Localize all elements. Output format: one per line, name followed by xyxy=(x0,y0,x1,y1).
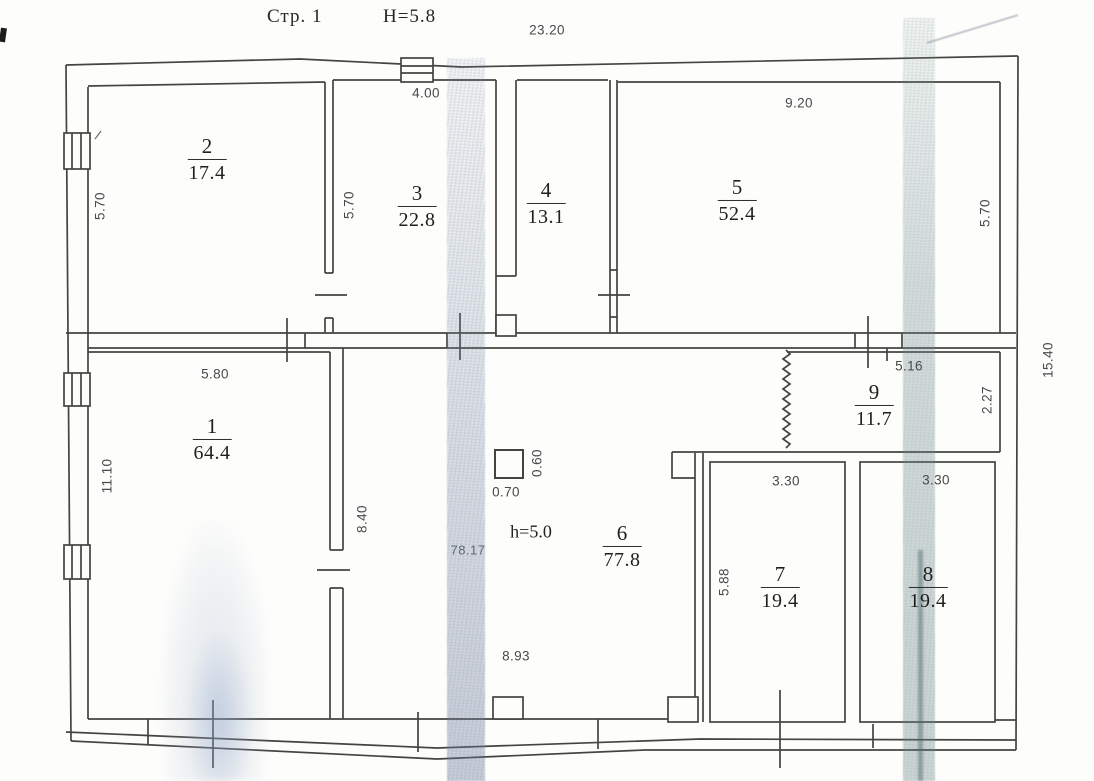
pen-slash-mark xyxy=(95,131,101,139)
dimension-label: 4.00 xyxy=(412,86,440,101)
wall-4-5-door-caps xyxy=(610,270,617,317)
room-area: 17.4 xyxy=(188,160,227,185)
room-number: 2 xyxy=(188,135,227,160)
room-6-label: 677.8 xyxy=(603,522,642,572)
dimension-label: 23.20 xyxy=(529,23,565,38)
room-1-label: 164.4 xyxy=(193,415,232,465)
bottom-pilaster-right xyxy=(668,697,698,722)
window-top-wall xyxy=(401,58,433,82)
room-number: 1 xyxy=(193,415,232,440)
block-7-8-notch xyxy=(672,452,695,478)
room-number: 3 xyxy=(398,182,437,207)
room-area: 22.8 xyxy=(398,207,437,232)
dimension-label: 0.70 xyxy=(492,485,520,500)
handwritten-annotation: 78.17 xyxy=(450,543,485,558)
wall-outer-right xyxy=(1016,56,1018,750)
window-left-room1-b xyxy=(64,545,90,579)
dimension-label: 11.10 xyxy=(100,459,115,494)
room-area: 19.4 xyxy=(761,588,800,613)
room-number: 7 xyxy=(761,563,800,588)
block-7-8-left-wall xyxy=(695,453,703,722)
room-number: 4 xyxy=(527,179,566,204)
dimension-label: 5.70 xyxy=(342,191,357,219)
room1-door-caps xyxy=(330,550,343,588)
dimension-label: 2.27 xyxy=(980,386,995,414)
room-area: 52.4 xyxy=(718,201,757,226)
dimension-label: 5.80 xyxy=(201,367,229,382)
room-number: 6 xyxy=(603,522,642,547)
room9-zigzag-partition xyxy=(783,350,790,448)
page-number-label: Стр. 1 xyxy=(267,6,322,28)
scanned-floor-plan-page: Стр. 1 Н=5.8 217.4322.8413.1552.4164.467… xyxy=(0,0,1094,781)
dimension-label: 5.16 xyxy=(895,359,923,374)
middle-wall-jambs xyxy=(305,333,902,348)
dimension-label: 0.60 xyxy=(530,449,545,477)
room-number: 9 xyxy=(855,381,894,406)
window-left-room1-a xyxy=(64,373,90,406)
room-number: 8 xyxy=(909,563,948,588)
dimension-label: 15.40 xyxy=(1041,342,1056,378)
room-4-label: 413.1 xyxy=(527,179,566,229)
room2-top-wall xyxy=(88,82,325,86)
dimension-label: 5.88 xyxy=(717,568,732,596)
wall-3-4-door-jamb xyxy=(496,315,516,336)
room-7-label: 719.4 xyxy=(761,563,800,613)
dimension-label: 3.30 xyxy=(922,473,950,488)
room-area: 64.4 xyxy=(193,440,232,465)
wall-3-4-right xyxy=(496,80,516,276)
room6-column xyxy=(495,450,523,478)
room-area: 77.8 xyxy=(603,547,642,572)
ceiling-height-annotation: h=5.0 xyxy=(510,522,552,543)
wall-outer-top xyxy=(66,56,1018,67)
dimension-label: 3.30 xyxy=(772,474,800,489)
window-left-room2 xyxy=(64,133,90,169)
floor-plan-drawing xyxy=(0,0,1094,781)
room-area: 13.1 xyxy=(527,204,566,229)
room-area: 19.4 xyxy=(909,588,948,613)
room-3-label: 322.8 xyxy=(398,182,437,232)
dimension-label: 5.70 xyxy=(978,199,993,227)
room-number: 5 xyxy=(718,176,757,201)
room-5-label: 552.4 xyxy=(718,176,757,226)
dimension-label: 8.93 xyxy=(502,649,530,664)
dimension-label: 9.20 xyxy=(785,96,813,111)
building-height-label: Н=5.8 xyxy=(383,6,436,28)
bottom-pilaster-left xyxy=(493,697,523,719)
room-2-label: 217.4 xyxy=(188,135,227,185)
room-9-label: 911.7 xyxy=(855,381,894,431)
dimension-label: 5.70 xyxy=(93,192,108,220)
dimension-label: 8.40 xyxy=(355,505,370,533)
room-area: 11.7 xyxy=(855,406,894,431)
bottom-wall-inner xyxy=(88,719,1016,720)
middle-wall-ticks xyxy=(287,313,887,368)
room-8-label: 819.4 xyxy=(909,563,948,613)
